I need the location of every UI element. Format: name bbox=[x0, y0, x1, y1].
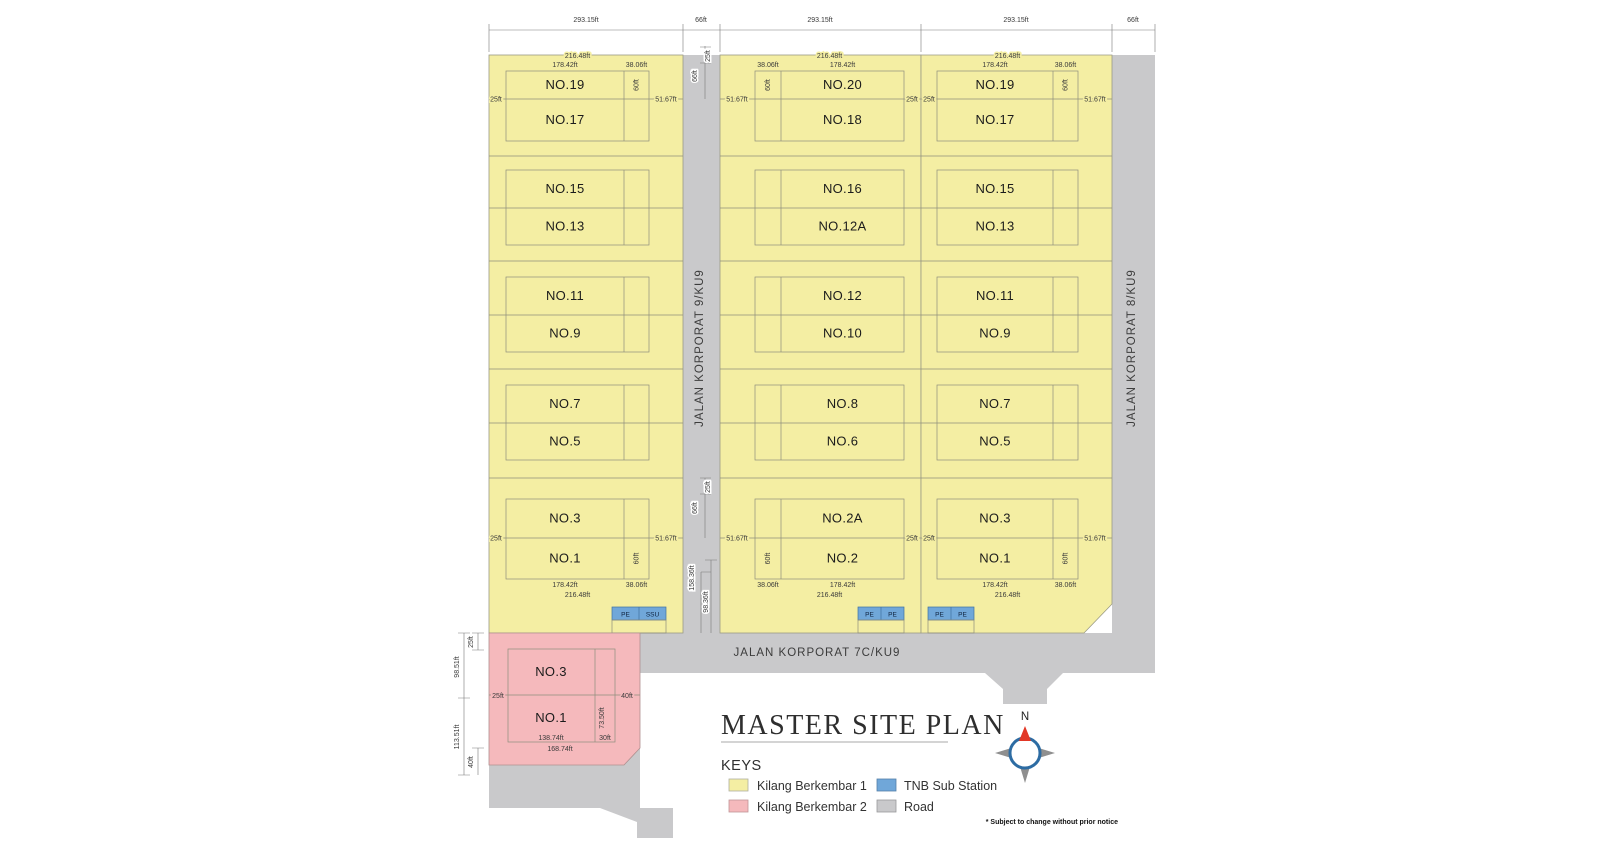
dim-label: 216.48ft bbox=[995, 592, 1020, 599]
dim-label: 25ft bbox=[492, 693, 504, 700]
plot-label-NO.17: NO.17 bbox=[975, 112, 1014, 127]
plot-label-NO.10: NO.10 bbox=[823, 326, 862, 341]
dim-label: 51.67ft bbox=[726, 97, 747, 104]
north-label: N bbox=[1021, 711, 1029, 723]
tnb-cell-label: PE bbox=[888, 612, 897, 619]
dim-label: 178.42ft bbox=[982, 582, 1007, 589]
plot-label-NO.11: NO.11 bbox=[546, 288, 584, 303]
dim-label: 38.06ft bbox=[1055, 62, 1076, 69]
dim-label: 38.06ft bbox=[626, 62, 647, 69]
plot-label-NO.12: NO.12 bbox=[823, 288, 862, 303]
dim-label: 178.42ft bbox=[552, 62, 577, 69]
dim-label: 66ft bbox=[695, 17, 707, 24]
compass-needle-icon bbox=[1019, 726, 1031, 741]
dim-label: 60ft bbox=[1063, 79, 1070, 91]
legend-label-kilang1: Kilang Berkembar 1 bbox=[757, 779, 867, 793]
dim-label: 25ft bbox=[906, 97, 918, 104]
dim-label: 25ft bbox=[906, 536, 918, 543]
dim-label: 216.48ft bbox=[565, 53, 590, 60]
block-column-middle-block bbox=[720, 55, 921, 633]
plot-label-pink-NO.1: NO.1 bbox=[535, 710, 567, 725]
dim-label: 25ft bbox=[490, 97, 502, 104]
legend-label-tnb: TNB Sub Station bbox=[904, 779, 997, 793]
dim-label: 178.42ft bbox=[552, 582, 577, 589]
plot-label-NO.9: NO.9 bbox=[549, 326, 581, 341]
dim-label: 51.67ft bbox=[655, 536, 676, 543]
site-plan-canvas: 293.15ft 66ft 293.15ft 293.15ft 66ft NO.… bbox=[0, 0, 1600, 853]
dim-label: 25ft bbox=[923, 97, 935, 104]
dim-label: 38.06ft bbox=[1055, 582, 1076, 589]
kilang2-block: NO.3 NO.1 25ft 40ft 73.50ft 138.74ft 30f… bbox=[454, 633, 640, 775]
factory-blocks: NO.19NO.17216.48ft178.42ft38.06ft60ft25f… bbox=[489, 53, 1112, 633]
tnb-cell-label: SSU bbox=[646, 612, 660, 619]
plot-label-NO.9: NO.9 bbox=[979, 326, 1011, 341]
plot-label-NO.2A: NO.2A bbox=[822, 511, 863, 526]
dim-label: 60ft bbox=[765, 79, 772, 91]
block-column-right-block bbox=[921, 55, 1112, 633]
dim-label: 38.06ft bbox=[626, 582, 647, 589]
plot-label-NO.8: NO.8 bbox=[827, 396, 859, 411]
plot-label-NO.7: NO.7 bbox=[979, 396, 1011, 411]
dim-label: 51.67ft bbox=[1084, 97, 1105, 104]
dim-label: 25ft bbox=[923, 536, 935, 543]
dim-label: 66ft bbox=[1127, 17, 1139, 24]
dim-label: 66ft bbox=[692, 502, 699, 514]
plot-label-NO.5: NO.5 bbox=[549, 434, 581, 449]
dim-label: 216.48ft bbox=[995, 53, 1020, 60]
plot-label-NO.5: NO.5 bbox=[979, 434, 1011, 449]
dim-label: 178.42ft bbox=[830, 582, 855, 589]
footnote: * Subject to change without prior notice bbox=[986, 819, 1118, 826]
plot-label-NO.20: NO.20 bbox=[823, 77, 862, 92]
keys-heading: KEYS bbox=[721, 758, 762, 774]
dim-label: 25ft bbox=[468, 636, 475, 648]
dim-label: 60ft bbox=[634, 79, 641, 91]
plot-label-NO.6: NO.6 bbox=[827, 434, 859, 449]
plot-label-NO.18: NO.18 bbox=[823, 112, 862, 127]
dim-label: 51.67ft bbox=[726, 536, 747, 543]
dim-label: 216.48ft bbox=[817, 592, 842, 599]
road-name-left-vertical: JALAN KORPORAT 9/KU9 bbox=[694, 269, 706, 427]
dim-label: 40ft bbox=[468, 756, 475, 768]
plot-label-NO.12A: NO.12A bbox=[818, 219, 866, 234]
tnb-cell-label: PE bbox=[958, 612, 967, 619]
dim-label: 30ft bbox=[599, 735, 611, 742]
plot-label-NO.13: NO.13 bbox=[975, 219, 1014, 234]
plot-label-NO.1: NO.1 bbox=[549, 551, 581, 566]
legend-label-kilang2: Kilang Berkembar 2 bbox=[757, 800, 867, 814]
plot-label-NO.11: NO.11 bbox=[976, 288, 1014, 303]
legend-swatch-kilang1 bbox=[729, 779, 748, 791]
dim-label: 216.48ft bbox=[565, 592, 590, 599]
dim-label: 51.67ft bbox=[1084, 536, 1105, 543]
tnb-cell-label: PE bbox=[935, 612, 944, 619]
plot-label-NO.15: NO.15 bbox=[975, 181, 1014, 196]
dim-label: 73.50ft bbox=[599, 707, 606, 728]
dim-label: 178.42ft bbox=[982, 62, 1007, 69]
plot-label-NO.17: NO.17 bbox=[545, 112, 584, 127]
dim-label: 293.15ft bbox=[573, 17, 598, 24]
road-compass-stub bbox=[985, 673, 1063, 704]
plot-label-NO.19: NO.19 bbox=[975, 77, 1014, 92]
dim-label: 51.67ft bbox=[655, 97, 676, 104]
plot-label-pink-NO.3: NO.3 bbox=[535, 664, 567, 679]
title-block: MASTER SITE PLAN KEYS Kilang Berkembar 1… bbox=[721, 710, 1118, 826]
road-name-right-vertical: JALAN KORPORAT 8/KU9 bbox=[1126, 269, 1138, 427]
plot-label-NO.3: NO.3 bbox=[549, 511, 581, 526]
dim-label: 168.74ft bbox=[547, 746, 572, 753]
plot-label-NO.2: NO.2 bbox=[827, 551, 859, 566]
plot-label-NO.7: NO.7 bbox=[549, 396, 581, 411]
dim-label: 60ft bbox=[634, 553, 641, 565]
road-name-horizontal: JALAN KORPORAT 7C/KU9 bbox=[734, 647, 901, 659]
site-plan-sheet: 293.15ft 66ft 293.15ft 293.15ft 66ft NO.… bbox=[0, 0, 1600, 853]
dim-label: 25ft bbox=[490, 536, 502, 543]
plot-label-NO.15: NO.15 bbox=[545, 181, 584, 196]
legend-swatch-tnb bbox=[877, 779, 896, 791]
dim-label: 293.15ft bbox=[807, 17, 832, 24]
dim-label: 113.51ft bbox=[454, 725, 461, 750]
legend-swatch-road bbox=[877, 800, 896, 812]
dim-label: 25ft bbox=[705, 481, 712, 493]
dim-label: 98.51ft bbox=[454, 656, 461, 677]
dim-label: 66ft bbox=[692, 70, 699, 82]
dim-label: 60ft bbox=[765, 553, 772, 565]
compass-ring-icon bbox=[1010, 738, 1040, 768]
road-bottom-stub bbox=[600, 808, 673, 838]
legend-swatch-kilang2 bbox=[729, 800, 748, 812]
plot-label-NO.1: NO.1 bbox=[979, 551, 1011, 566]
legend-label-road: Road bbox=[904, 800, 934, 814]
dim-label: 38.06ft bbox=[757, 62, 778, 69]
dim-label: 293.15ft bbox=[1003, 17, 1028, 24]
dim-label: 98.36ft bbox=[703, 591, 710, 612]
plot-label-NO.16: NO.16 bbox=[823, 181, 862, 196]
plot-label-NO.3: NO.3 bbox=[979, 511, 1011, 526]
top-dimension-row: 293.15ft 66ft 293.15ft 293.15ft 66ft bbox=[489, 17, 1155, 52]
page-title: MASTER SITE PLAN bbox=[721, 710, 1005, 741]
dim-label: 40ft bbox=[621, 693, 633, 700]
dim-label: 216.48ft bbox=[817, 53, 842, 60]
dim-label: 138.74ft bbox=[538, 735, 563, 742]
dim-label: 158.36ft bbox=[689, 565, 696, 590]
plot-label-NO.19: NO.19 bbox=[545, 77, 584, 92]
tnb-cell-label: PE bbox=[621, 612, 630, 619]
dim-label: 25ft bbox=[705, 50, 712, 62]
plot-label-NO.13: NO.13 bbox=[545, 219, 584, 234]
tnb-cell-label: PE bbox=[865, 612, 874, 619]
dim-label: 178.42ft bbox=[830, 62, 855, 69]
dim-label: 60ft bbox=[1063, 553, 1070, 565]
block-column-left-block bbox=[489, 55, 683, 633]
dim-label: 38.06ft bbox=[757, 582, 778, 589]
